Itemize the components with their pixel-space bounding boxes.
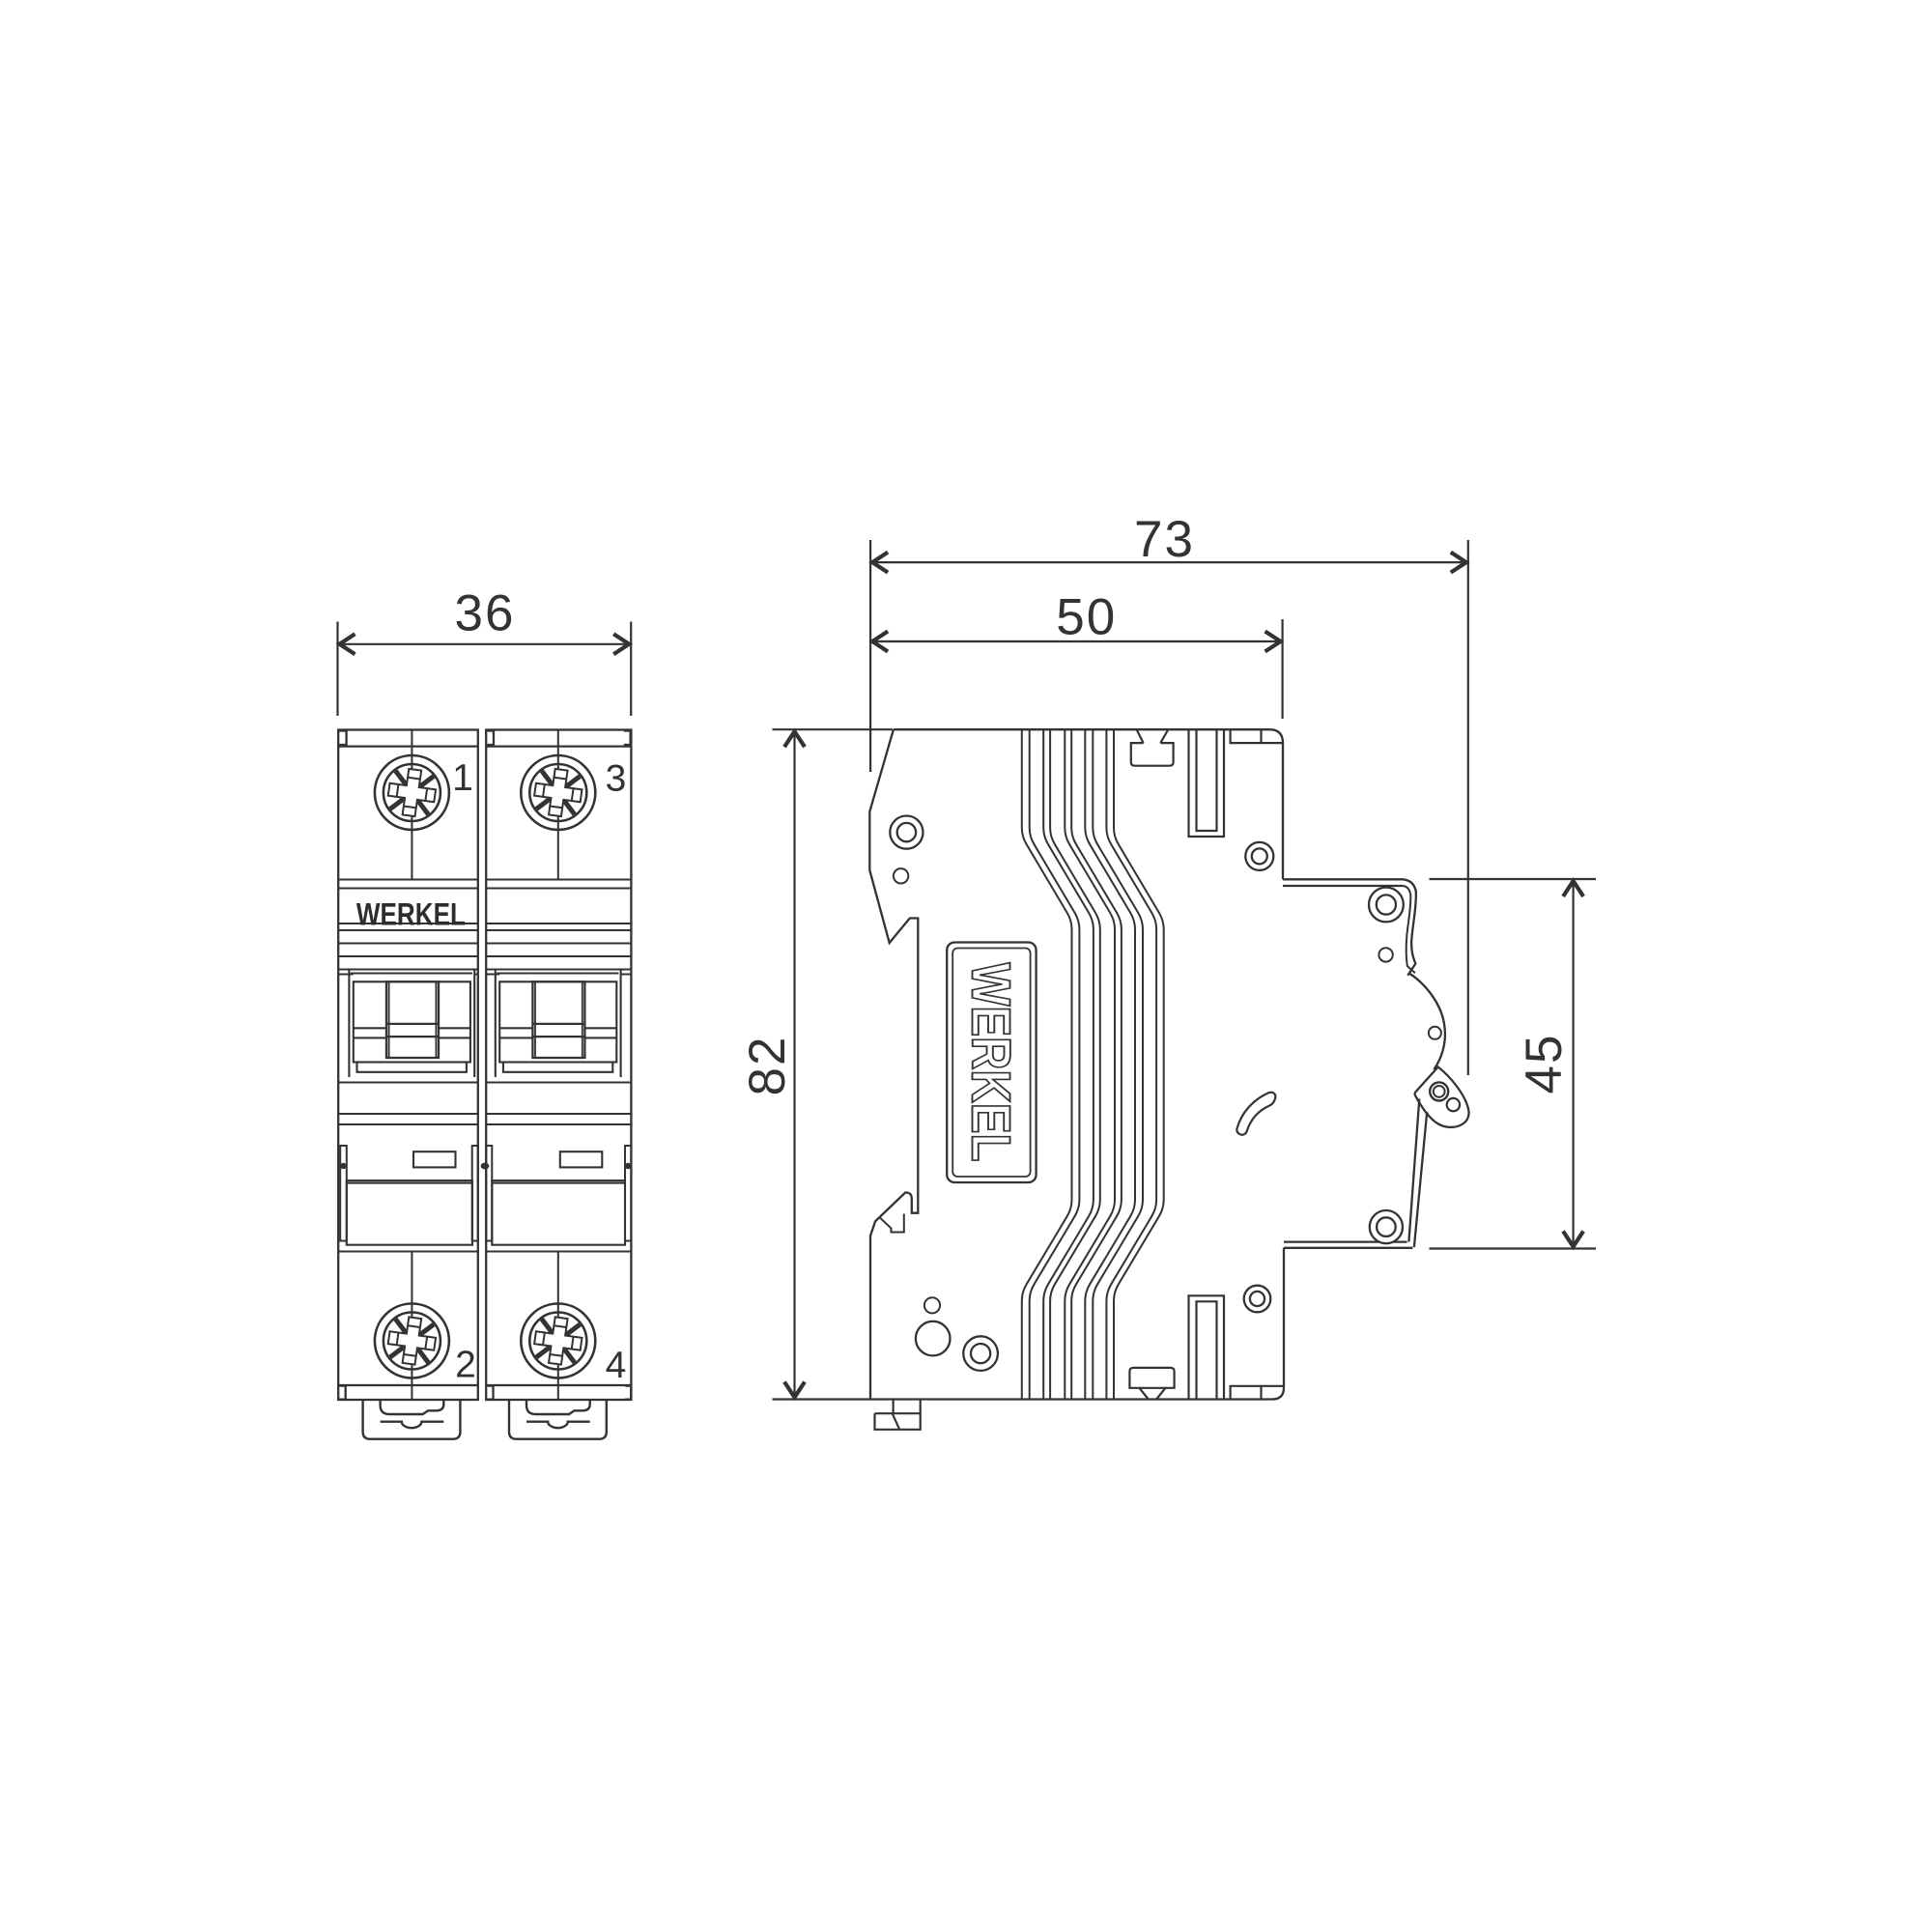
svg-text:WERKEL: WERKEL bbox=[356, 897, 466, 932]
svg-text:73: 73 bbox=[1134, 511, 1195, 568]
svg-text:4: 4 bbox=[606, 1345, 627, 1386]
svg-text:WERKEL: WERKEL bbox=[960, 963, 1022, 1162]
svg-text:36: 36 bbox=[455, 585, 516, 642]
svg-text:1: 1 bbox=[452, 757, 473, 799]
svg-text:82: 82 bbox=[739, 1036, 796, 1096]
svg-text:3: 3 bbox=[606, 758, 627, 800]
svg-text:50: 50 bbox=[1056, 589, 1117, 646]
svg-text:45: 45 bbox=[1516, 1034, 1573, 1094]
svg-text:2: 2 bbox=[455, 1345, 476, 1386]
